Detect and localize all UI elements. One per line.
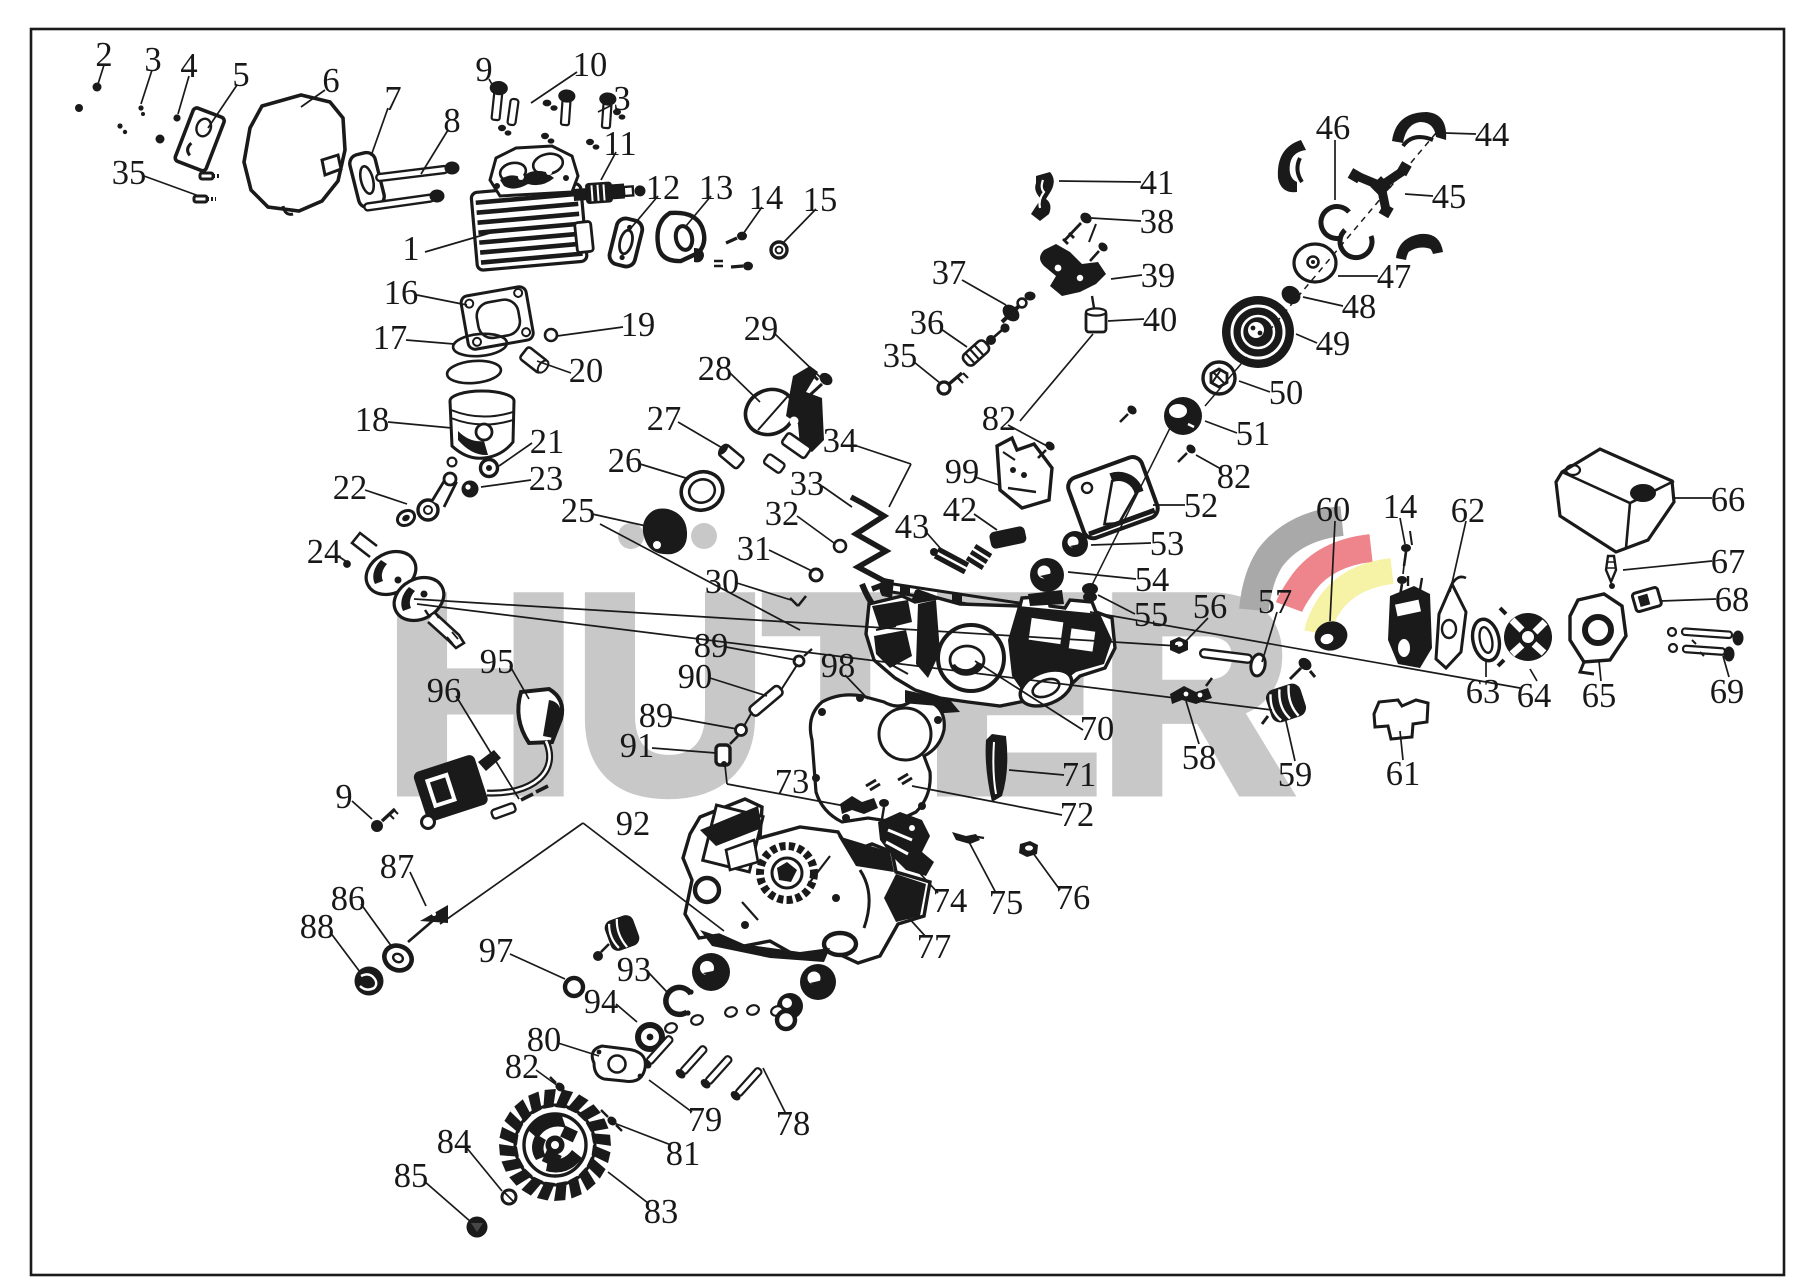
svg-text:54: 54 [1135,561,1170,599]
svg-text:77: 77 [917,928,952,966]
svg-text:20: 20 [569,352,604,390]
svg-text:95: 95 [480,643,515,681]
svg-text:93: 93 [617,951,652,989]
svg-text:91: 91 [620,727,655,765]
svg-text:3: 3 [144,41,161,79]
svg-text:47: 47 [1377,258,1412,296]
svg-text:2: 2 [95,36,112,74]
svg-text:12: 12 [646,169,681,207]
svg-text:24: 24 [307,533,342,571]
svg-text:34: 34 [823,422,858,460]
svg-text:63: 63 [1466,673,1501,711]
svg-text:15: 15 [803,181,838,219]
svg-text:7: 7 [384,80,401,118]
svg-text:46: 46 [1316,109,1351,147]
svg-text:16: 16 [384,274,419,312]
svg-text:35: 35 [883,337,918,375]
svg-text:85: 85 [394,1157,429,1195]
svg-text:69: 69 [1710,673,1745,711]
svg-text:58: 58 [1182,739,1217,777]
svg-text:64: 64 [1517,677,1552,715]
svg-text:28: 28 [698,350,733,388]
svg-text:44: 44 [1475,116,1510,154]
svg-text:56: 56 [1193,588,1228,626]
svg-text:27: 27 [647,400,682,438]
svg-text:19: 19 [621,306,656,344]
svg-text:50: 50 [1269,374,1304,412]
svg-text:52: 52 [1184,487,1219,525]
svg-text:13: 13 [699,169,734,207]
svg-text:74: 74 [933,882,968,920]
svg-text:70: 70 [1080,710,1115,748]
svg-text:42: 42 [943,491,978,529]
svg-text:96: 96 [427,672,462,710]
svg-text:26: 26 [608,442,643,480]
svg-text:65: 65 [1582,677,1617,715]
svg-text:94: 94 [584,983,619,1021]
svg-text:43: 43 [895,508,930,546]
svg-text:14: 14 [1383,488,1418,526]
svg-text:86: 86 [331,880,366,918]
svg-text:99: 99 [945,453,980,491]
svg-text:98: 98 [821,647,856,685]
svg-text:76: 76 [1056,879,1091,917]
svg-text:14: 14 [749,179,784,217]
svg-text:9: 9 [335,778,352,816]
svg-text:71: 71 [1062,756,1097,794]
svg-text:9: 9 [475,51,492,89]
svg-text:55: 55 [1134,596,1169,634]
svg-text:84: 84 [437,1123,472,1161]
svg-text:72: 72 [1060,796,1095,834]
svg-text:38: 38 [1140,203,1175,241]
svg-text:87: 87 [380,848,415,886]
svg-text:73: 73 [775,763,810,801]
svg-text:49: 49 [1316,325,1351,363]
svg-text:21: 21 [530,423,565,461]
svg-text:6: 6 [322,62,339,100]
svg-text:90: 90 [678,658,713,696]
svg-text:61: 61 [1386,755,1421,793]
svg-text:23: 23 [529,460,564,498]
svg-text:25: 25 [561,492,596,530]
svg-text:75: 75 [989,884,1024,922]
svg-text:48: 48 [1342,288,1377,326]
svg-text:79: 79 [688,1101,723,1139]
svg-text:30: 30 [705,563,740,601]
svg-text:82: 82 [1217,458,1252,496]
svg-text:22: 22 [333,469,368,507]
svg-text:4: 4 [180,47,197,85]
svg-text:45: 45 [1432,178,1467,216]
svg-text:78: 78 [776,1105,811,1143]
svg-text:39: 39 [1141,257,1176,295]
svg-text:35: 35 [112,154,147,192]
svg-text:36: 36 [910,304,945,342]
svg-text:3: 3 [613,80,630,118]
svg-text:18: 18 [355,401,390,439]
svg-text:40: 40 [1143,301,1178,339]
svg-text:11: 11 [603,125,636,163]
svg-text:66: 66 [1711,481,1746,519]
svg-text:60: 60 [1316,491,1351,529]
svg-text:62: 62 [1451,492,1486,530]
svg-text:68: 68 [1715,581,1750,619]
svg-text:41: 41 [1140,164,1175,202]
svg-text:1: 1 [402,230,419,268]
svg-text:37: 37 [932,254,967,292]
svg-text:97: 97 [479,932,514,970]
svg-text:8: 8 [443,102,460,140]
svg-text:57: 57 [1258,583,1293,621]
svg-text:83: 83 [644,1193,679,1231]
svg-text:88: 88 [300,908,335,946]
svg-text:17: 17 [373,319,408,357]
svg-text:67: 67 [1711,543,1746,581]
svg-text:29: 29 [744,310,779,348]
svg-text:82: 82 [982,400,1017,438]
svg-text:31: 31 [737,530,772,568]
svg-text:10: 10 [573,46,608,84]
svg-text:33: 33 [790,465,825,503]
svg-text:51: 51 [1236,415,1271,453]
svg-text:5: 5 [232,56,249,94]
svg-text:53: 53 [1150,525,1185,563]
svg-text:82: 82 [505,1048,540,1086]
svg-text:59: 59 [1278,756,1313,794]
svg-text:92: 92 [616,805,651,843]
svg-text:81: 81 [666,1135,701,1173]
